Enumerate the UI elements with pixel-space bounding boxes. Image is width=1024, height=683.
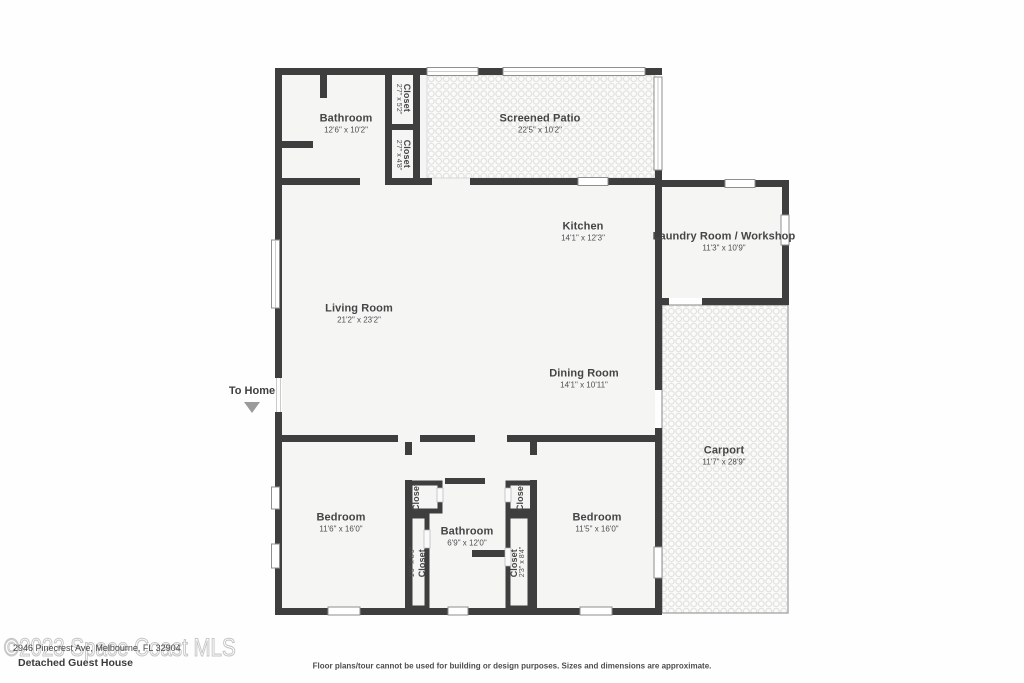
room-name: Closet xyxy=(515,483,525,511)
room-name: Dining Room xyxy=(549,367,619,381)
room-dims: 22'5" x 10'2" xyxy=(500,126,581,136)
room-name: Kitchen xyxy=(561,220,605,234)
room-label-kitchen: Kitchen 14'1" x 12'3" xyxy=(561,220,605,245)
room-label-carport: Carport 11'7" x 28'9" xyxy=(702,444,745,469)
room-dims: 6'9" x 12'0" xyxy=(441,539,494,549)
room-dims: 11'6" x 16'0" xyxy=(317,525,366,535)
room-name: Screened Patio xyxy=(500,112,581,126)
room-label-bedroom-right: Bedroom 11'5" x 16'0" xyxy=(573,511,622,536)
room-dims: 11'7" x 28'9" xyxy=(702,458,745,468)
room-label-closet-bottom-right: Closet 2'3" x 8'4" xyxy=(509,547,527,578)
room-name: Living Room xyxy=(325,302,393,316)
room-name: Closet xyxy=(509,547,519,578)
room-label-closet-hall-left: Closet xyxy=(411,483,421,511)
room-label-living-room: Living Room 21'2" x 23'2" xyxy=(325,302,393,327)
disclaimer-text: Floor plans/tour cannot be used for buil… xyxy=(313,662,712,671)
room-dims: 14'1" x 12'3" xyxy=(561,234,605,244)
room-label-closet-top-2: Closet 2'7" x 4'8" xyxy=(394,140,412,171)
room-name: Closet xyxy=(402,84,412,115)
room-dims: 11'3" x 10'9" xyxy=(653,244,796,254)
room-name: Laundry Room / Workshop xyxy=(653,230,796,244)
room-label-screened-patio: Screened Patio 22'5" x 10'2" xyxy=(500,112,581,137)
room-dims: 1'9" x 8'9" xyxy=(409,547,417,578)
plan-title: Detached Guest House xyxy=(18,657,133,669)
arrow-down-icon xyxy=(244,402,260,413)
room-name: Bathroom xyxy=(441,525,494,539)
room-label-bathroom-top: Bathroom 12'6" x 10'2" xyxy=(320,112,373,137)
room-dims: 11'5" x 16'0" xyxy=(573,525,622,535)
room-dims: 2'7" x 5'2" xyxy=(394,84,402,115)
room-label-closet-top-1: Closet 2'7" x 5'2" xyxy=(394,84,412,115)
floorplan-canvas: Bathroom 12'6" x 10'2" Screened Patio 22… xyxy=(0,0,1024,683)
room-dims: 14'1" x 10'11" xyxy=(549,381,619,391)
room-dims: 21'2" x 23'2" xyxy=(325,316,393,326)
room-dims: 2'3" x 8'4" xyxy=(519,547,527,578)
address-text: 2946 Pinecrest Ave, Melbourne, FL 32904 xyxy=(13,643,181,653)
room-name: Bedroom xyxy=(317,511,366,525)
room-name: Bedroom xyxy=(573,511,622,525)
room-name: Closet xyxy=(417,547,427,578)
floorplan-graphic xyxy=(0,0,1024,683)
room-dims: 2'7" x 4'8" xyxy=(394,140,402,171)
room-label-dining-room: Dining Room 14'1" x 10'11" xyxy=(549,367,619,392)
room-label-bathroom-bottom: Bathroom 6'9" x 12'0" xyxy=(441,525,494,550)
room-name: Bathroom xyxy=(320,112,373,126)
room-label-bedroom-left: Bedroom 11'6" x 16'0" xyxy=(317,511,366,536)
room-label-laundry-workshop: Laundry Room / Workshop 11'3" x 10'9" xyxy=(653,230,796,255)
room-name: Carport xyxy=(702,444,745,458)
room-name: Closet xyxy=(411,483,421,511)
room-dims: 12'6" x 10'2" xyxy=(320,126,373,136)
room-label-closet-bottom-left: 1'9" x 8'9" Closet xyxy=(409,547,427,578)
room-label-closet-hall-right: Closet xyxy=(515,483,525,511)
to-home-label: To Home xyxy=(229,385,275,397)
room-name: Closet xyxy=(402,140,412,171)
